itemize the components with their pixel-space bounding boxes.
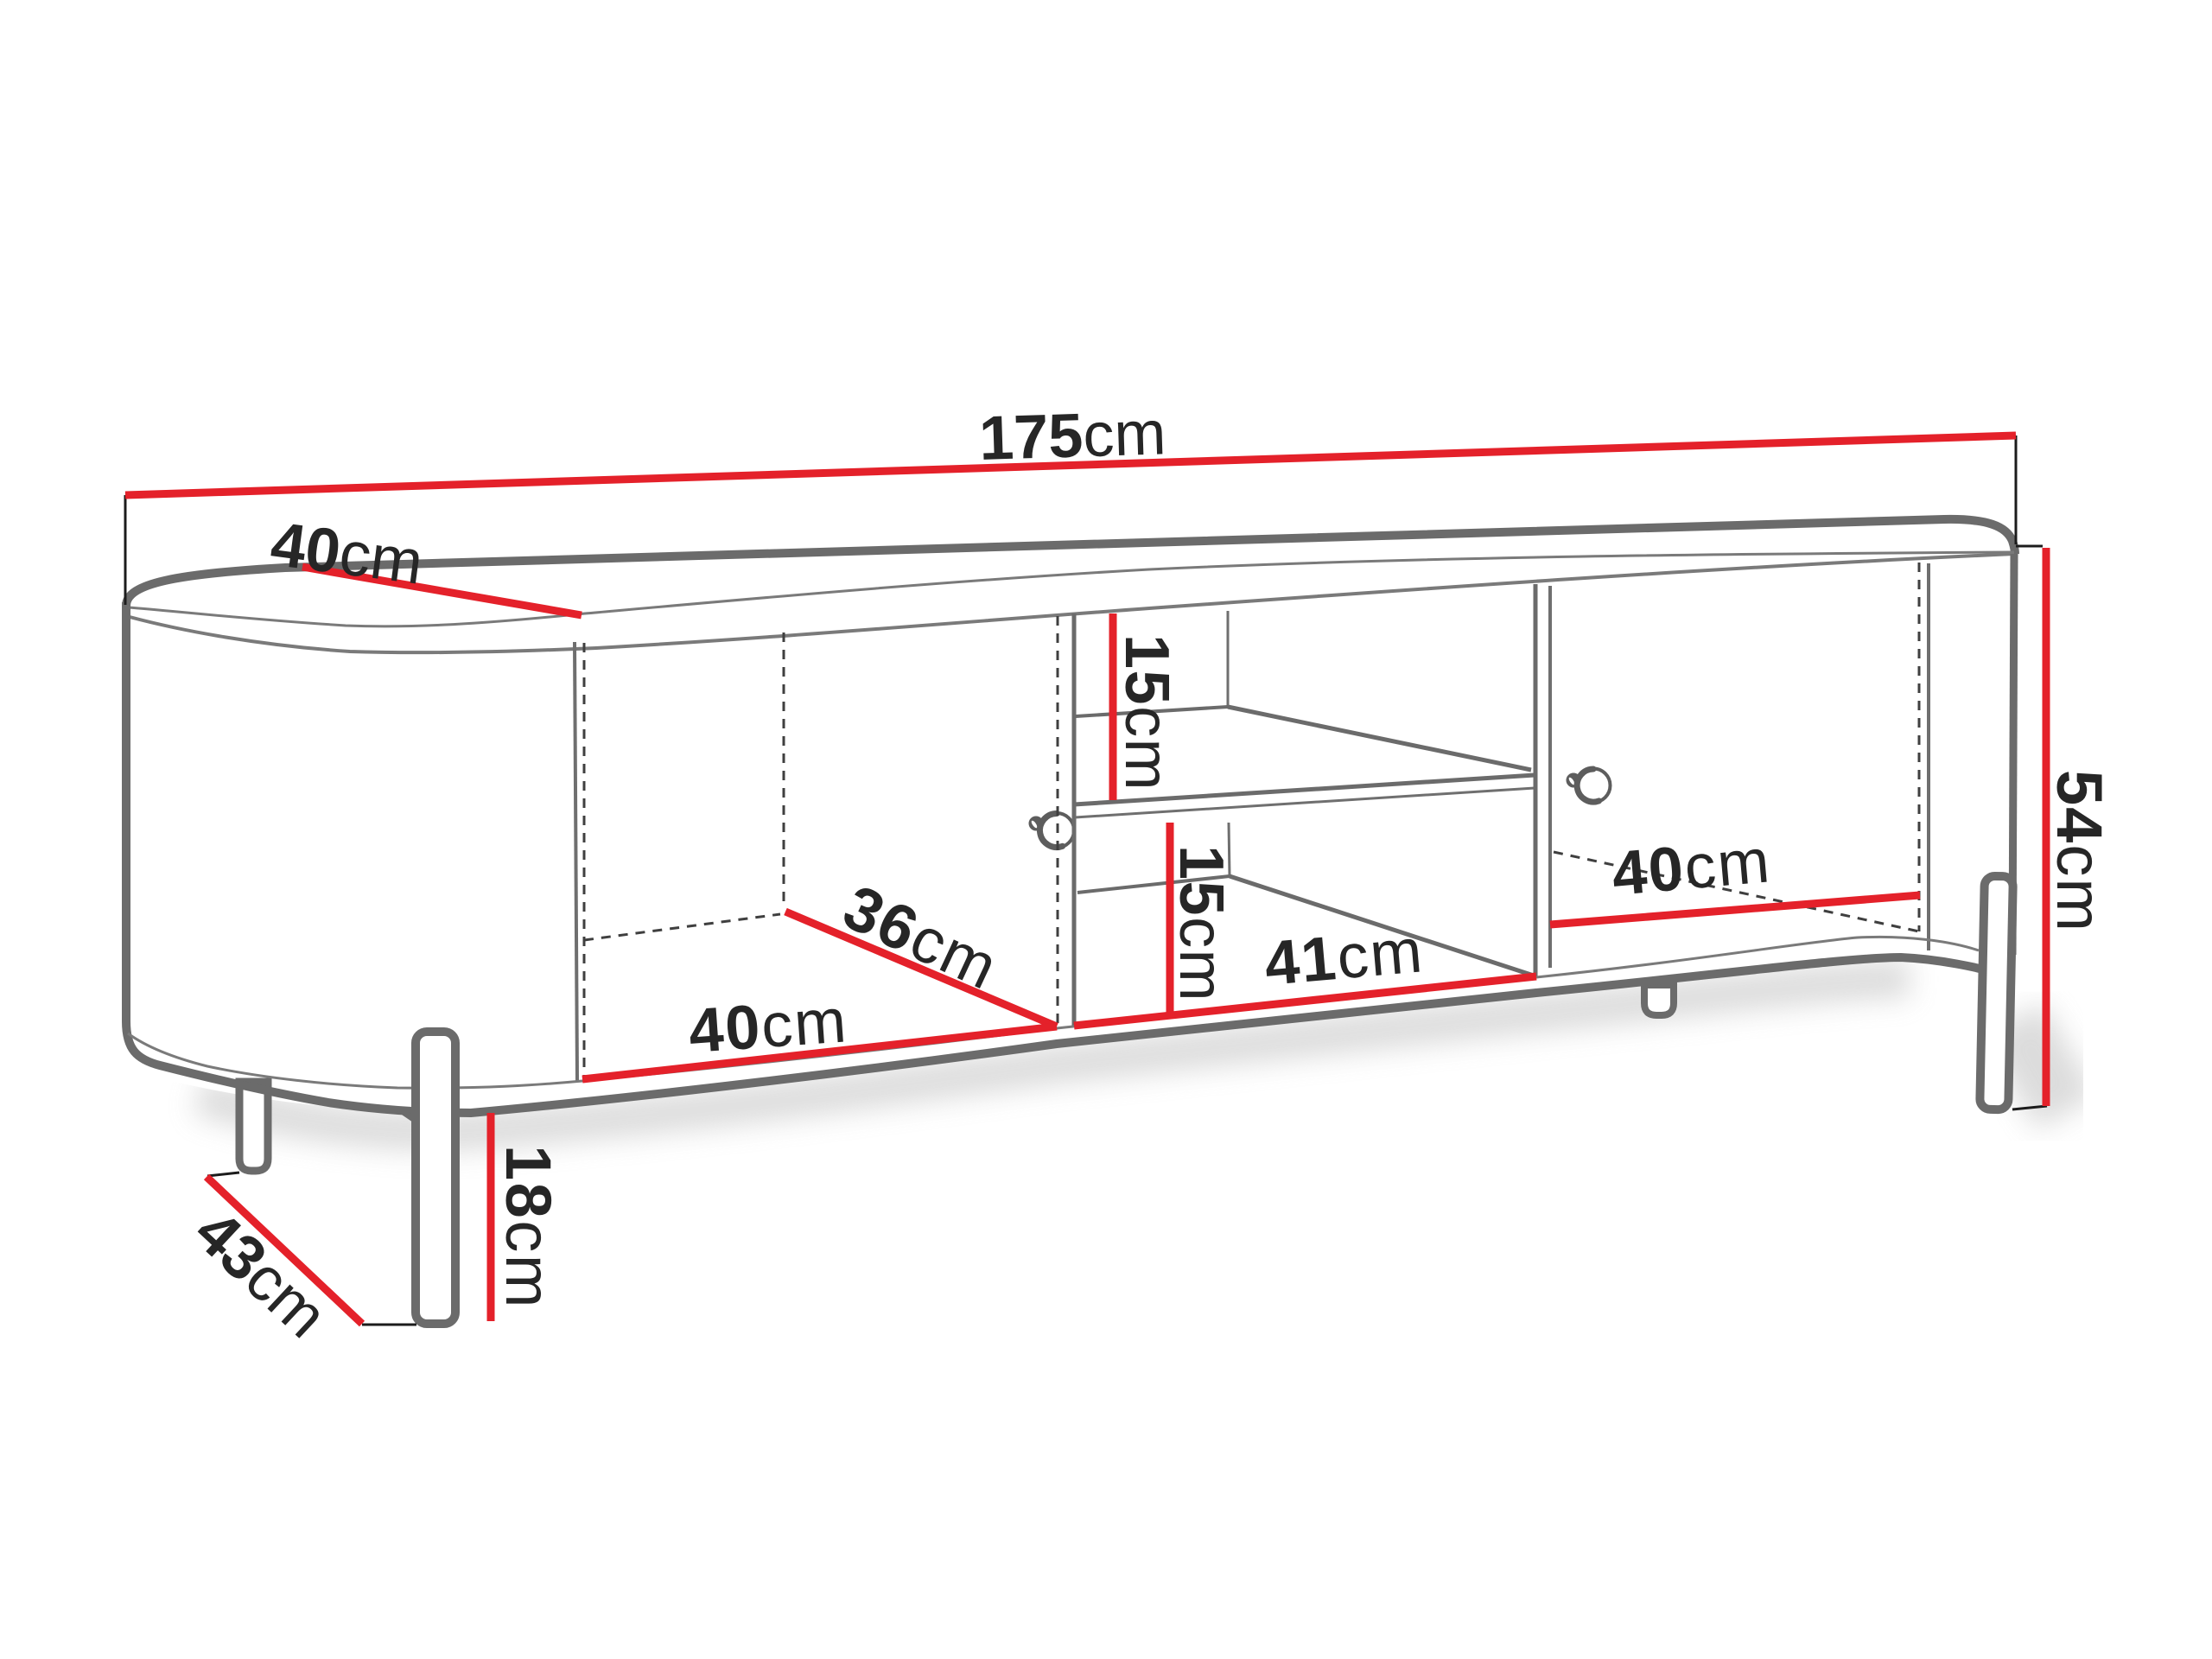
svg-text:15cm: 15cm: [1166, 845, 1236, 1002]
svg-text:175cm: 175cm: [978, 398, 1167, 474]
svg-text:41cm: 41cm: [1262, 916, 1426, 999]
svg-text:40cm: 40cm: [687, 986, 850, 1066]
svg-text:54cm: 54cm: [2044, 770, 2115, 933]
svg-text:40cm: 40cm: [1609, 826, 1773, 909]
svg-text:15cm: 15cm: [1112, 634, 1181, 791]
svg-text:18cm: 18cm: [493, 1145, 564, 1310]
